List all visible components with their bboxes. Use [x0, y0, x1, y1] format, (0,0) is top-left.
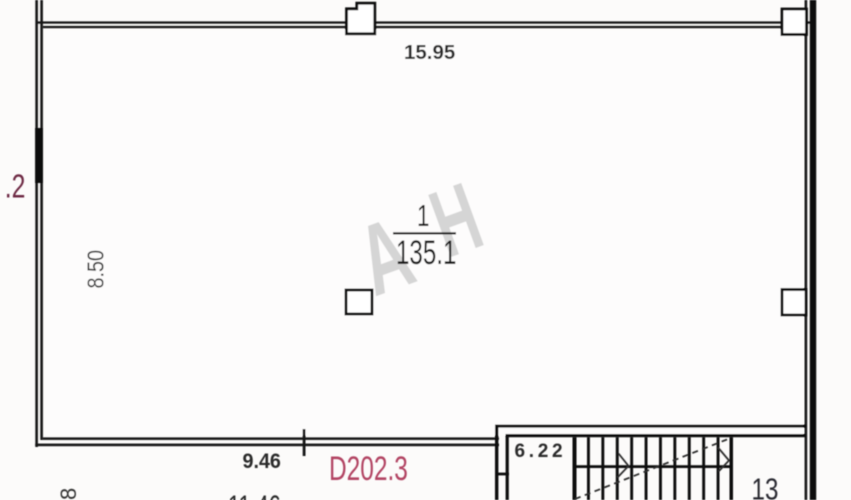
svg-text:15.95: 15.95: [404, 41, 455, 64]
svg-text:6.22: 6.22: [515, 441, 567, 462]
svg-text:9.46: 9.46: [243, 450, 281, 473]
svg-text:1: 1: [417, 198, 429, 232]
svg-text:D202.3: D202.3: [329, 450, 408, 488]
svg-text:8.50: 8.50: [83, 250, 109, 289]
svg-text:.2: .2: [5, 168, 26, 206]
svg-text:13: 13: [752, 472, 779, 500]
svg-text:8: 8: [56, 488, 81, 500]
svg-text:135.1: 135.1: [396, 234, 456, 272]
svg-text:11.46: 11.46: [228, 489, 281, 500]
